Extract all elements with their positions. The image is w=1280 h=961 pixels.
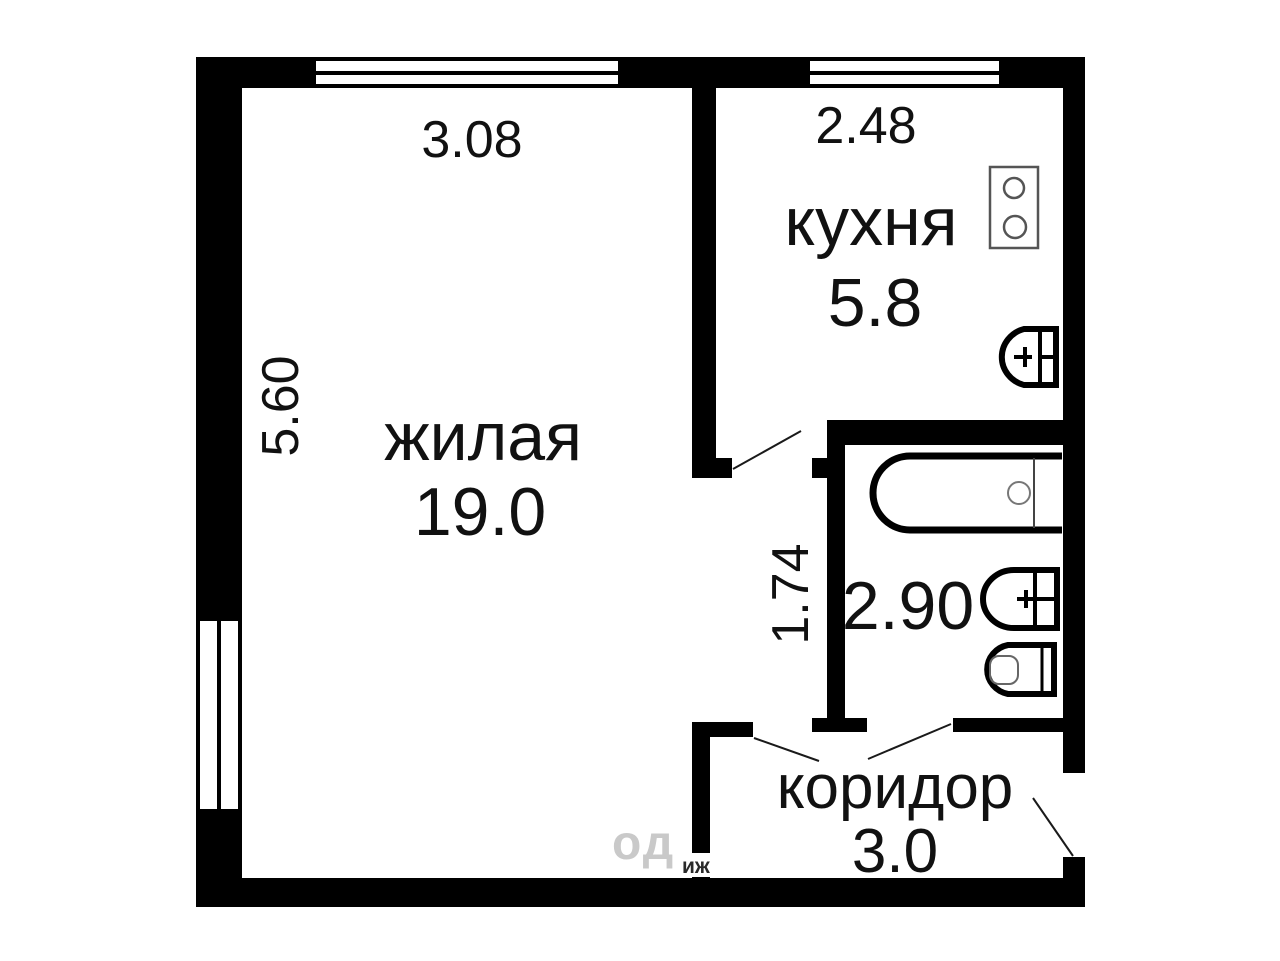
washbasin-icon <box>983 570 1057 628</box>
room-label-corridor: коридор <box>777 757 1014 819</box>
area-label-living: 19.0 <box>414 478 546 546</box>
bathtub-icon <box>873 456 1062 530</box>
dim-label-living-depth: 5.60 <box>255 355 307 456</box>
door-swing-line-entrance <box>1033 798 1073 856</box>
stove-icon <box>990 167 1038 248</box>
dim-label-hallway-width: 1.74 <box>765 543 817 644</box>
toilet-icon <box>987 645 1054 694</box>
door-swing-line-kitchen <box>733 431 801 469</box>
dim-label-living-width: 3.08 <box>421 114 522 166</box>
watermark-fragment-top: од <box>612 820 675 868</box>
area-label-kitchen: 5.8 <box>828 269 923 337</box>
room-label-living: жилая <box>384 403 582 471</box>
area-label-bathroom: 2.90 <box>842 572 974 640</box>
room-label-kitchen: кухня <box>785 188 958 256</box>
floor-plan: 3.08 5.60 жилая 19.0 2.48 кухня 5.8 1.74… <box>0 0 1280 961</box>
kitchen-sink-icon <box>1002 329 1056 385</box>
dim-label-kitchen-width: 2.48 <box>815 100 916 152</box>
watermark-fragment-bottom: иж <box>682 856 710 877</box>
area-label-corridor: 3.0 <box>852 821 938 883</box>
